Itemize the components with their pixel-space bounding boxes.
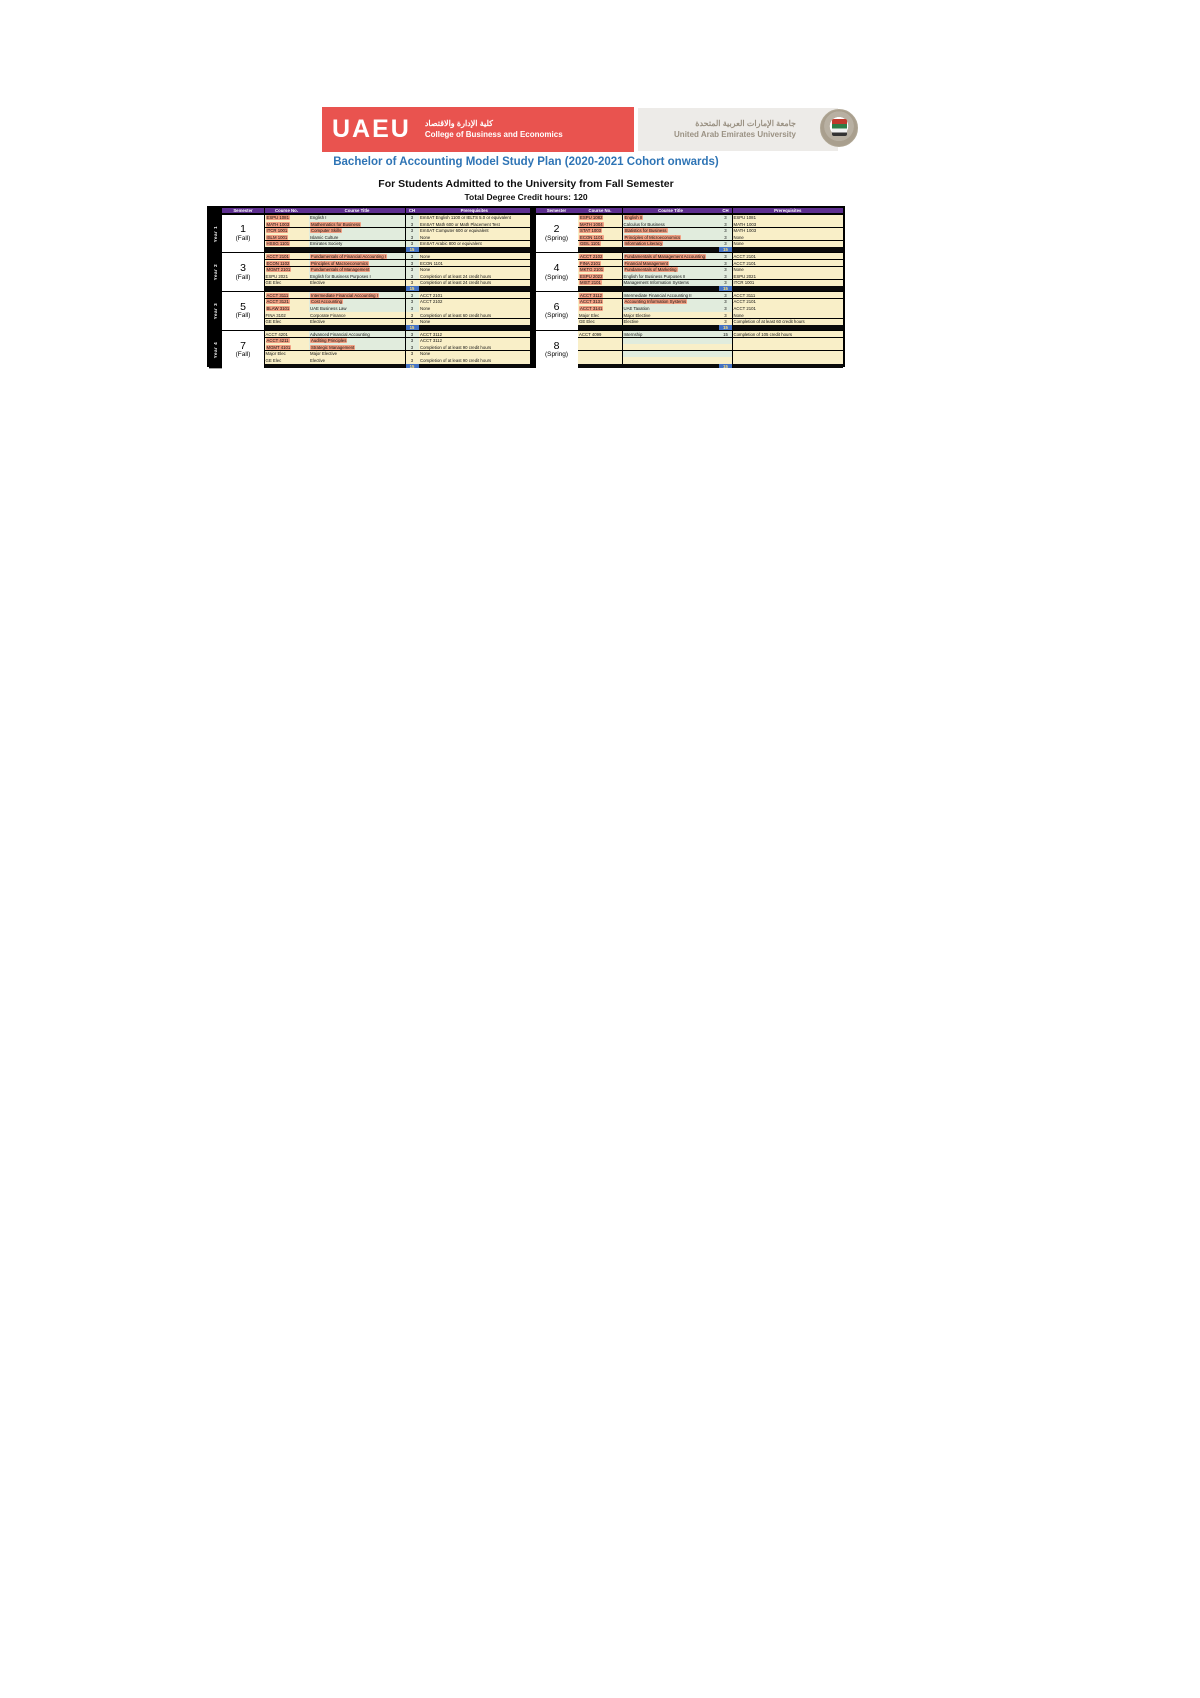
semester-term: (Fall): [236, 236, 251, 243]
course-title-cell: English for Business Purposes II: [623, 273, 719, 279]
course-no-cell: ACCT 4201: [265, 331, 309, 337]
credit-hours-cell: [719, 351, 732, 357]
course-title: Financial Management: [624, 261, 669, 266]
course-no-cell: ISLM 1001: [265, 234, 309, 240]
course-title: English II: [624, 215, 644, 220]
credit-hours-cell: 3: [719, 215, 732, 221]
semester-term: (Spring): [545, 313, 568, 320]
prerequisite-cell: EmSAT Computer 600 or equivalent: [419, 228, 530, 234]
credit-hours-cell: 3: [406, 241, 419, 247]
semester-total-credits: 15: [719, 325, 732, 329]
prerequisite-cell: ESPU 2021: [733, 273, 844, 279]
total-row-filler: [578, 325, 719, 329]
course-no-cell: GEIL 1101: [578, 241, 622, 247]
credit-hours-cell: 3: [406, 260, 419, 266]
semester-number: 2: [554, 224, 560, 235]
course-title: UAE Business Law: [310, 306, 347, 311]
course-number: MGMT 2101: [266, 267, 292, 272]
credit-hours-cell: 3: [406, 215, 419, 221]
semester-total-credits: 15: [719, 364, 732, 368]
total-row-filler: [733, 286, 844, 290]
study-plan-document: UAEU كلية الإدارة والاقتصاد College of B…: [0, 0, 1200, 1698]
semester-term: (Spring): [545, 236, 568, 243]
course-no-cell: ACCT 3131: [578, 299, 622, 305]
course-title: Internship: [624, 332, 643, 337]
total-row-filler: [578, 286, 719, 290]
course-title: Fundamentals of Management: [310, 267, 370, 272]
course-number: GE Elec: [266, 280, 282, 285]
course-number: GE Elec: [266, 319, 282, 324]
credit-hours-cell: 3: [719, 312, 732, 318]
document-title: Bachelor of Accounting Model Study Plan …: [207, 156, 845, 168]
course-title: Fundamentals of Marketing: [624, 267, 678, 272]
year-block: Year 11(Fall)ESPU 1081English I3EmSAT En…: [209, 215, 843, 252]
credit-hours-cell: 3: [719, 280, 732, 286]
prerequisite-cell: EmSAT Math 600 or Math Placement Test: [419, 221, 530, 227]
credit-hours-cell: 3: [406, 351, 419, 357]
prerequisite-cell: None: [733, 267, 844, 273]
semester-cell: 4(Spring): [536, 253, 578, 290]
prerequisite-cell: MATH 1003: [733, 228, 844, 234]
prerequisite-cell: ACCT 2101: [733, 260, 844, 266]
course-no-cell: ACCT 2101: [265, 253, 309, 259]
credit-hours-cell: 3: [719, 228, 732, 234]
course-number: GE Elec: [266, 358, 282, 363]
course-number: STAT 1003: [579, 228, 602, 233]
course-no-cell: ESPU 2021: [265, 273, 309, 279]
prerequisite-cell: [733, 351, 844, 357]
course-title: Major Elective: [310, 351, 337, 356]
column-header-course-title: Course Title: [623, 208, 719, 213]
credit-hours-cell: 3: [406, 228, 419, 234]
course-title-cell: [623, 338, 719, 344]
prerequisite-cell: None: [733, 312, 844, 318]
course-number: ACCT 4099: [579, 332, 601, 337]
course-title-cell: Auditing Principles: [309, 338, 405, 344]
course-number: ACCT 4201: [266, 332, 288, 337]
course-title-cell: UAE Business Law: [309, 305, 405, 311]
course-title: Intermediate Financial Accounting I: [310, 293, 379, 298]
column-header-course-title: Course Title: [309, 208, 405, 213]
college-name-arabic: كلية الإدارة والاقتصاد: [425, 119, 563, 129]
column-header-course-no-: Course No.: [265, 208, 309, 213]
credit-hours-cell: 15: [719, 331, 732, 337]
credit-hours-cell: [719, 338, 732, 344]
course-title: Corporate Finance: [310, 313, 346, 318]
prerequisite-cell: EmSAT Arabic 800 or equivalent: [419, 241, 530, 247]
course-title-cell: Calculus for Business: [623, 221, 719, 227]
course-number: ECON 1102: [266, 261, 291, 266]
course-title-cell: Major Elective: [309, 351, 405, 357]
column-header-semester: Semester: [222, 208, 264, 213]
total-credit-hours: Total Degree Credit hours: 120: [207, 192, 845, 202]
column-header-semester: Semester: [536, 208, 578, 213]
university-logo-block: جامعة الإمارات العربية المتحدة United Ar…: [638, 108, 838, 151]
year-label: Year 3: [209, 292, 222, 329]
prerequisite-cell: ITCR 1001: [733, 280, 844, 286]
prerequisite-cell: None: [419, 253, 530, 259]
course-title: Management Information Systems: [624, 280, 689, 285]
credit-hours-cell: 3: [406, 299, 419, 305]
semester-number: 3: [240, 263, 246, 274]
semester-number: 8: [554, 341, 560, 352]
course-number: GE Elec: [579, 319, 595, 324]
course-number: ESPU 2021: [266, 274, 288, 279]
course-title-cell: Intermediate Financial Accounting II: [623, 292, 719, 298]
prerequisite-cell: None: [419, 319, 530, 325]
credit-hours-cell: 3: [719, 292, 732, 298]
course-no-cell: GE Elec: [578, 319, 622, 325]
total-row-filler: [578, 364, 719, 368]
prerequisite-cell: [733, 357, 844, 363]
credit-hours-cell: 3: [406, 280, 419, 286]
semester-number: 7: [240, 341, 246, 352]
course-number: MGMT 4101: [266, 345, 292, 350]
course-number: ESPU 2022: [579, 274, 603, 279]
course-no-cell: MGMT 2101: [265, 267, 309, 273]
course-number: FINA 2101: [579, 261, 601, 266]
prerequisite-cell: ACCT 3112: [419, 338, 530, 344]
total-row-filler: [733, 325, 844, 329]
course-no-cell: Major Elec: [265, 351, 309, 357]
course-number: MIST 2101: [579, 280, 602, 285]
course-title-cell: [623, 344, 719, 350]
course-title-cell: Accounting Information Systems: [623, 299, 719, 305]
course-number: ACCT 2102: [579, 254, 603, 259]
semester-number: 1: [240, 224, 246, 235]
course-title-cell: Islamic Culture: [309, 234, 405, 240]
credit-hours-cell: 3: [406, 267, 419, 273]
semester-term: (Fall): [236, 352, 251, 359]
column-header-row: SemesterCourse No.Course TitleCHPrerequi…: [536, 208, 844, 213]
column-header-row: SemesterCourse No.Course TitleCHPrerequi…: [222, 208, 530, 213]
course-no-cell: STAT 1003: [578, 228, 622, 234]
course-number: GEIL 1101: [579, 241, 601, 246]
course-title: Statistics for Business: [624, 228, 668, 233]
credit-hours-cell: 3: [719, 305, 732, 311]
course-number: ACCT 3112: [579, 293, 603, 298]
semester-cell: 1(Fall): [222, 215, 264, 252]
course-number: Major Elec: [266, 351, 286, 356]
prerequisite-cell: None: [419, 234, 530, 240]
credit-hours-cell: 3: [719, 253, 732, 259]
uaeu-falcon-emblem-icon: [820, 109, 858, 147]
course-no-cell: FINA 2101: [578, 260, 622, 266]
credit-hours-cell: [719, 357, 732, 363]
course-title-cell: Elective: [623, 319, 719, 325]
course-no-cell: ESPU 1081: [265, 215, 309, 221]
credit-hours-cell: 3: [406, 357, 419, 363]
course-title-cell: Fundamentals of Financial Accounting I: [309, 253, 405, 259]
credit-hours-cell: 3: [719, 267, 732, 273]
semester-number: 5: [240, 302, 246, 313]
credit-hours-cell: 3: [719, 299, 732, 305]
credit-hours-cell: 3: [406, 344, 419, 350]
prerequisite-cell: MATH 1003: [733, 221, 844, 227]
total-row-filler: [733, 247, 844, 251]
prerequisite-cell: Completion of at least 60 credit hours: [733, 319, 844, 325]
prerequisite-cell: ACCT 2101: [733, 253, 844, 259]
course-title-cell: Financial Management: [623, 260, 719, 266]
course-title: Accounting Information Systems: [624, 299, 688, 304]
semester-cell: 6(Spring): [536, 292, 578, 329]
course-number: ACCT 3121: [266, 299, 290, 304]
prerequisite-cell: Completion of 105 credit hours: [733, 331, 844, 337]
course-title-cell: Statistics for Business: [623, 228, 719, 234]
course-title-cell: Cost Accounting: [309, 299, 405, 305]
year-label: Year 4: [209, 331, 222, 368]
prerequisite-cell: Completion of at least 60 credit hours: [419, 312, 530, 318]
course-number: MATH 1003: [266, 222, 291, 227]
credit-hours-cell: 3: [406, 331, 419, 337]
credit-hours-cell: 3: [406, 221, 419, 227]
college-name-english: College of Business and Economics: [425, 130, 563, 140]
course-no-cell: ACCT 3141: [578, 305, 622, 311]
course-number: Major Elec: [579, 313, 599, 318]
prerequisite-cell: Completion of at least 24 credit hours: [419, 273, 530, 279]
course-number: ACCT 3131: [579, 299, 603, 304]
course-title: Islamic Culture: [310, 235, 338, 240]
semester-number: 4: [554, 263, 560, 274]
course-no-cell: GE Elec: [265, 319, 309, 325]
course-title-cell: Intermediate Financial Accounting I: [309, 292, 405, 298]
semester-cell: 8(Spring): [536, 331, 578, 368]
semester-total-credits: 15: [406, 325, 419, 329]
total-row-filler: [578, 247, 719, 251]
column-header-ch: CH: [406, 208, 419, 213]
course-title: Computer Skills: [310, 228, 342, 233]
credit-hours-cell: 3: [719, 221, 732, 227]
course-title-cell: Principles of Microeconomics: [623, 234, 719, 240]
course-title-cell: Internship: [623, 331, 719, 337]
year-block: Year 23(Fall)ACCT 2101Fundamentals of Fi…: [209, 253, 843, 290]
course-title: Major Elective: [624, 313, 651, 318]
prerequisite-cell: ACCT 2101: [733, 299, 844, 305]
total-row-filler: [265, 247, 406, 251]
semester-table: 3(Fall)ACCT 2101Fundamentals of Financia…: [222, 253, 530, 290]
semester-term: (Fall): [236, 313, 251, 320]
prerequisite-cell: None: [419, 351, 530, 357]
course-no-cell: MIST 2101: [578, 280, 622, 286]
course-title: Advanced Financial Accounting: [310, 332, 370, 337]
college-name: كلية الإدارة والاقتصاد College of Busine…: [425, 119, 563, 140]
course-title-cell: Fundamentals of Marketing: [623, 267, 719, 273]
credit-hours-cell: 3: [719, 234, 732, 240]
course-title: Elective: [310, 280, 325, 285]
prerequisite-cell: Completion of at least 24 credit hours: [419, 280, 530, 286]
credit-hours-cell: 3: [406, 253, 419, 259]
course-no-cell: ESPU 1082: [578, 215, 622, 221]
course-number: ESPU 1081: [266, 215, 290, 220]
document-subtitle: For Students Admitted to the University …: [207, 178, 845, 190]
course-title: Fundamentals of Financial Accounting I: [310, 254, 387, 259]
college-logo-block: UAEU كلية الإدارة والاقتصاد College of B…: [322, 107, 634, 152]
course-no-cell: MGMT 4101: [265, 344, 309, 350]
course-no-cell: [578, 357, 622, 363]
course-no-cell: [578, 338, 622, 344]
course-title-cell: UAE Taxation: [623, 305, 719, 311]
semester-total-credits: 15: [406, 286, 419, 290]
course-title: English I: [310, 215, 326, 220]
table-header-corner: [209, 208, 222, 213]
semester-table: 6(Spring)ACCT 3112Intermediate Financial…: [536, 292, 844, 329]
course-title-cell: Emirates Society: [309, 241, 405, 247]
prerequisite-cell: ACCT 2101: [419, 292, 530, 298]
course-no-cell: [578, 351, 622, 357]
course-title: Mathematics for Business: [310, 222, 361, 227]
course-title-cell: English II: [623, 215, 719, 221]
course-title-cell: Strategic Management: [309, 344, 405, 350]
semester-term: (Spring): [545, 352, 568, 359]
course-title-cell: Computer Skills: [309, 228, 405, 234]
credit-hours-cell: 3: [406, 273, 419, 279]
prerequisite-cell: [733, 344, 844, 350]
semester-total-credits: 15: [406, 364, 419, 368]
course-no-cell: Major Elec: [578, 312, 622, 318]
semester-cell: 5(Fall): [222, 292, 264, 329]
course-number: ECON 1101: [579, 235, 604, 240]
course-no-cell: ECON 1101: [578, 234, 622, 240]
total-row-filler: [265, 325, 406, 329]
course-no-cell: ECON 1102: [265, 260, 309, 266]
credit-hours-cell: 3: [406, 292, 419, 298]
course-number: ITCR 1001: [266, 228, 289, 233]
course-title-cell: Fundamentals of Management: [309, 267, 405, 273]
semester-table: 1(Fall)ESPU 1081English I3EmSAT English …: [222, 215, 530, 252]
course-title-cell: Major Elective: [623, 312, 719, 318]
course-title-cell: Corporate Finance: [309, 312, 405, 318]
prerequisite-cell: ACCT 2102: [419, 299, 530, 305]
credit-hours-cell: 3: [406, 338, 419, 344]
course-number: HSSG 1101: [266, 241, 291, 246]
credit-hours-cell: 3: [719, 241, 732, 247]
semester-total-credits: 15: [719, 286, 732, 290]
semester-table: 7(Fall)ACCT 4201Advanced Financial Accou…: [222, 331, 530, 368]
course-title: Cost Accounting: [310, 299, 343, 304]
prerequisite-cell: ESPU 1081: [733, 215, 844, 221]
course-title: Elective: [310, 358, 325, 363]
prerequisite-cell: [733, 338, 844, 344]
total-row-filler: [419, 364, 530, 368]
course-no-cell: ACCT 3121: [265, 299, 309, 305]
course-title: Fundamentals of Management Accounting: [624, 254, 707, 259]
course-title-cell: Management Information Systems: [623, 280, 719, 286]
table-header-row: SemesterCourse No.Course TitleCHPrerequi…: [209, 208, 843, 213]
course-number: FINA 3102: [266, 313, 286, 318]
prerequisite-cell: Completion of at least 90 credit hours: [419, 344, 530, 350]
course-no-cell: ACCT 3112: [578, 292, 622, 298]
course-no-cell: MATH 1004: [578, 221, 622, 227]
course-title: Information Literacy: [624, 241, 664, 246]
credit-hours-cell: 3: [719, 319, 732, 325]
total-row-filler: [419, 325, 530, 329]
credit-hours-cell: 3: [406, 312, 419, 318]
semester-table: 2(Spring)ESPU 1082English II3ESPU 1081MA…: [536, 215, 844, 252]
credit-hours-cell: 3: [719, 260, 732, 266]
course-number: ACCT 3111: [266, 293, 290, 298]
total-row-filler: [733, 364, 844, 368]
prerequisite-cell: None: [733, 234, 844, 240]
semester-table: 5(Fall)ACCT 3111Intermediate Financial A…: [222, 292, 530, 329]
total-row-filler: [419, 247, 530, 251]
course-title-cell: [623, 351, 719, 357]
course-no-cell: ACCT 4099: [578, 331, 622, 337]
study-plan-table: SemesterCourse No.Course TitleCHPrerequi…: [207, 206, 845, 367]
prerequisite-cell: EmSAT English 1100 or IELTS 5.0 or equiv…: [419, 215, 530, 221]
prerequisite-cell: None: [733, 241, 844, 247]
course-title-cell: Principles of Macroeconomics: [309, 260, 405, 266]
course-title: Strategic Management: [310, 345, 355, 350]
year-label: Year 1: [209, 215, 222, 252]
course-title-cell: English I: [309, 215, 405, 221]
course-number: ACCT 2101: [266, 254, 290, 259]
prerequisite-cell: ECON 1101: [419, 260, 530, 266]
credit-hours-cell: 3: [406, 305, 419, 311]
semester-table: 8(Spring)ACCT 4099Internship15Completion…: [536, 331, 844, 368]
course-no-cell: ACCT 3111: [265, 292, 309, 298]
course-title: Intermediate Financial Accounting II: [624, 293, 692, 298]
course-no-cell: ACCT 2102: [578, 253, 622, 259]
course-number: ACCT 3141: [579, 306, 603, 311]
year-block: Year 35(Fall)ACCT 3111Intermediate Finan…: [209, 292, 843, 329]
course-title-cell: Information Literacy: [623, 241, 719, 247]
course-number: MATH 1004: [579, 222, 604, 227]
credit-hours-cell: 3: [719, 273, 732, 279]
university-name-english: United Arab Emirates University: [674, 130, 796, 141]
course-no-cell: ITCR 1001: [265, 228, 309, 234]
semester-total-credits: 15: [406, 247, 419, 251]
year-block: Year 47(Fall)ACCT 4201Advanced Financial…: [209, 331, 843, 368]
credit-hours-cell: 3: [406, 319, 419, 325]
course-title: Auditing Principles: [310, 338, 347, 343]
prerequisite-cell: ACCT 3112: [419, 331, 530, 337]
course-title-cell: Advanced Financial Accounting: [309, 331, 405, 337]
course-number: MKTG 2101: [579, 267, 604, 272]
university-name-arabic: جامعة الإمارات العربية المتحدة: [695, 119, 796, 130]
total-row-filler: [419, 286, 530, 290]
course-no-cell: BLAW 3101: [265, 305, 309, 311]
column-header-course-no-: Course No.: [578, 208, 622, 213]
semester-table: 4(Spring)ACCT 2102Fundamentals of Manage…: [536, 253, 844, 290]
course-title-cell: Elective: [309, 319, 405, 325]
course-title: Principles of Macroeconomics: [310, 261, 369, 266]
course-number: ACCT 4211: [266, 338, 290, 343]
course-number: ISLM 1001: [266, 235, 289, 240]
course-title-cell: English for Business Purposes I: [309, 273, 405, 279]
course-title-cell: [623, 357, 719, 363]
course-title-cell: Elective: [309, 357, 405, 363]
total-row-filler: [265, 286, 406, 290]
credit-hours-cell: [719, 344, 732, 350]
course-no-cell: MKTG 2101: [578, 267, 622, 273]
course-title: Elective: [310, 319, 325, 324]
course-no-cell: FINA 3102: [265, 312, 309, 318]
course-number: BLAW 3101: [266, 306, 291, 311]
column-header-ch: CH: [719, 208, 732, 213]
course-title: English for Business Purposes II: [624, 274, 686, 279]
semester-cell: 3(Fall): [222, 253, 264, 290]
uaeu-wordmark: UAEU: [332, 117, 411, 142]
semester-term: (Fall): [236, 275, 251, 282]
prerequisite-cell: None: [419, 267, 530, 273]
course-no-cell: MATH 1003: [265, 221, 309, 227]
course-title-cell: Elective: [309, 280, 405, 286]
semester-total-credits: 15: [719, 247, 732, 251]
semester-number: 6: [554, 302, 560, 313]
course-title-cell: Fundamentals of Management Accounting: [623, 253, 719, 259]
course-no-cell: [578, 344, 622, 350]
course-no-cell: HSSG 1101: [265, 241, 309, 247]
